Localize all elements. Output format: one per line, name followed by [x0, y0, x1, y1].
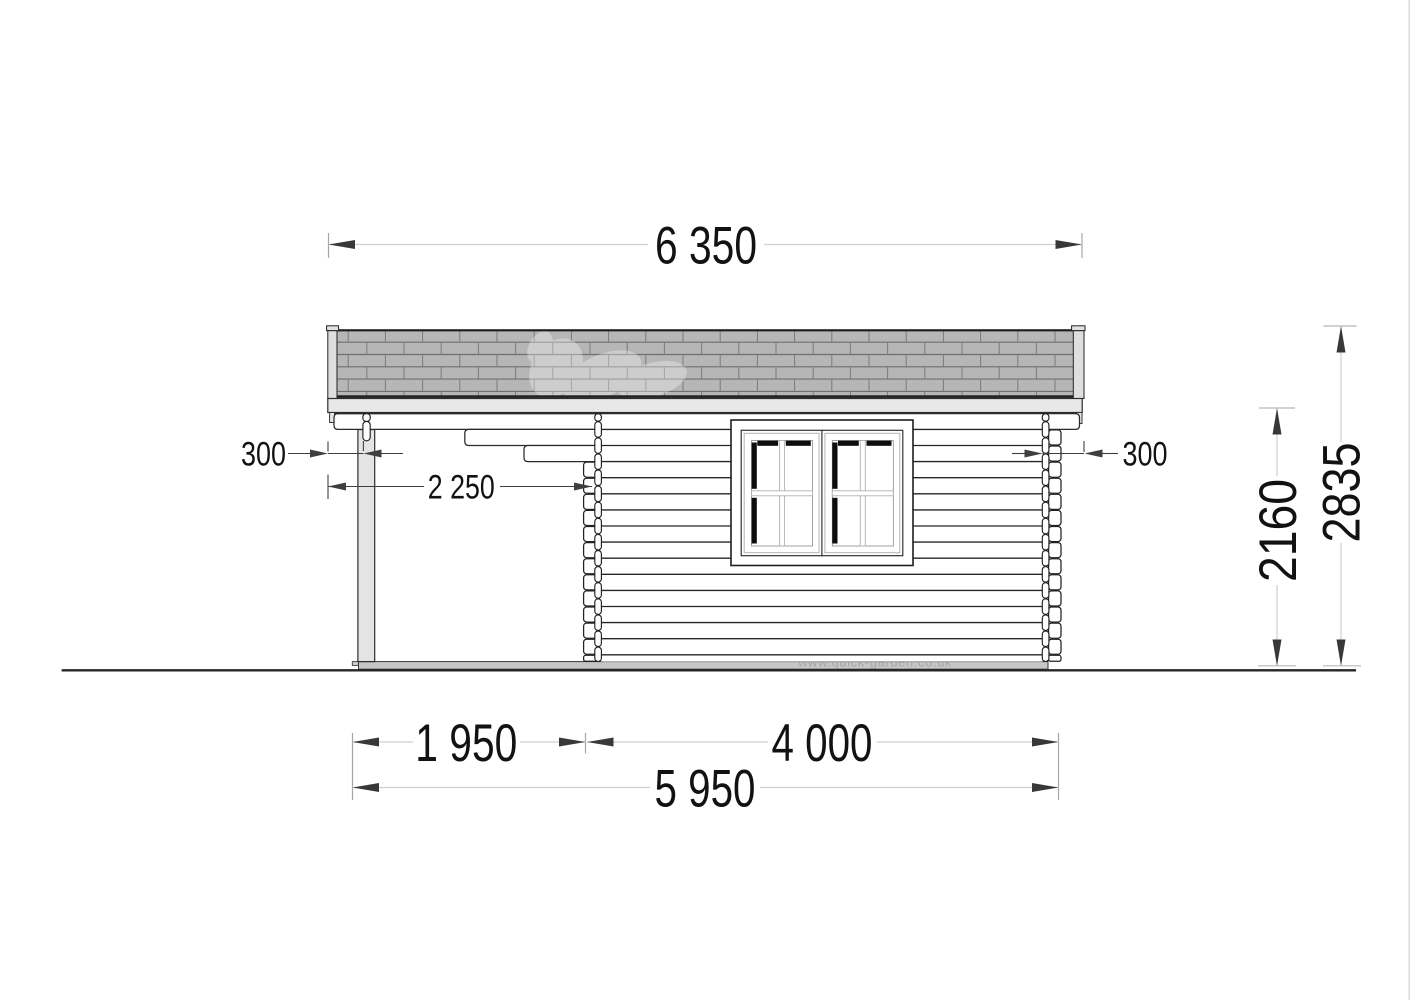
svg-text:2835: 2835: [1313, 443, 1372, 543]
svg-text:4 000: 4 000: [772, 714, 873, 773]
svg-text:5 950: 5 950: [655, 760, 756, 819]
svg-text:2160: 2160: [1249, 479, 1308, 582]
svg-text:2 250: 2 250: [428, 469, 495, 507]
svg-text:300: 300: [241, 436, 286, 474]
svg-text:6 350: 6 350: [655, 217, 757, 276]
svg-text:300: 300: [1123, 436, 1168, 474]
svg-text:1 950: 1 950: [415, 714, 517, 773]
